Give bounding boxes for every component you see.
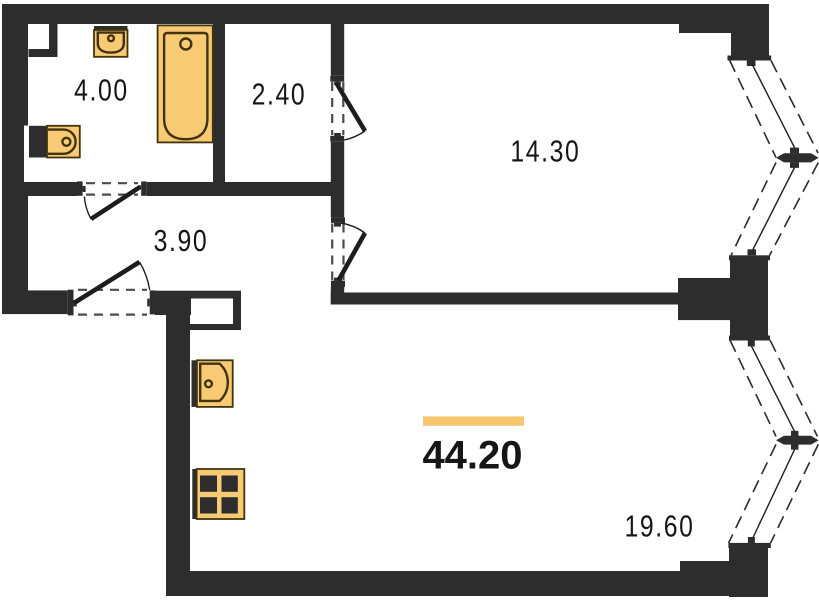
svg-text:14.30: 14.30 — [510, 134, 580, 168]
svg-text:4.00: 4.00 — [74, 73, 129, 107]
svg-text:2.40: 2.40 — [252, 77, 307, 111]
svg-text:19.60: 19.60 — [624, 509, 694, 543]
svg-text:3.90: 3.90 — [154, 223, 209, 257]
svg-text:44.20: 44.20 — [422, 434, 522, 478]
